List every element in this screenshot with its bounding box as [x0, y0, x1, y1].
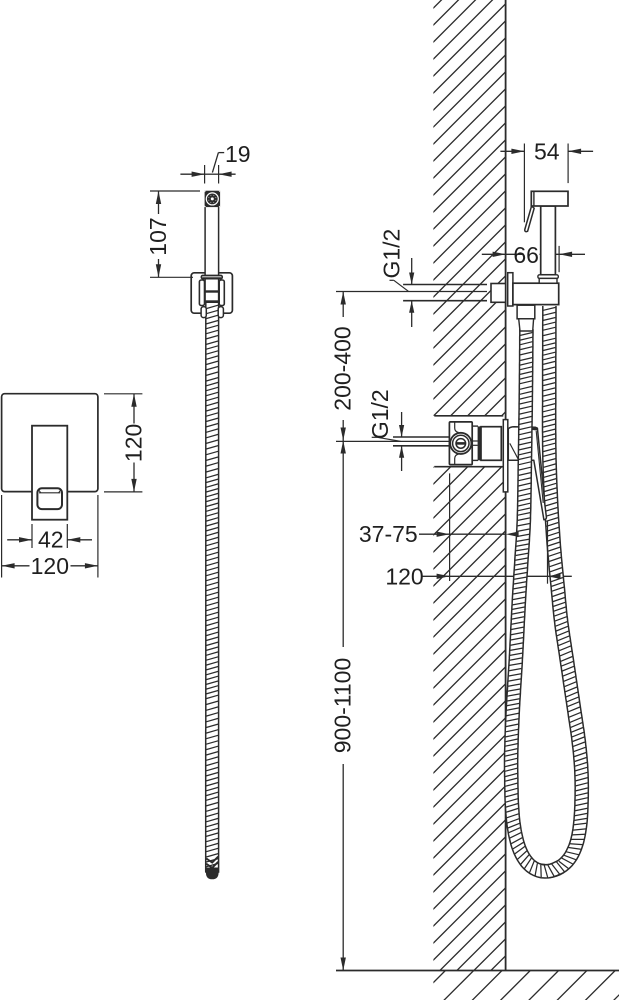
svg-text:107: 107: [145, 217, 171, 255]
svg-text:120: 120: [31, 553, 69, 579]
svg-text:G1/2: G1/2: [367, 389, 393, 439]
svg-text:37-75: 37-75: [359, 521, 418, 547]
svg-text:G1/2: G1/2: [379, 229, 405, 279]
svg-text:900-1100: 900-1100: [330, 658, 356, 754]
svg-text:120: 120: [385, 563, 423, 589]
svg-text:66: 66: [513, 242, 539, 268]
svg-text:19: 19: [225, 141, 251, 167]
svg-text:120: 120: [120, 424, 146, 462]
svg-text:200-400: 200-400: [330, 326, 356, 410]
svg-text:42: 42: [38, 527, 64, 553]
svg-text:54: 54: [534, 138, 560, 164]
